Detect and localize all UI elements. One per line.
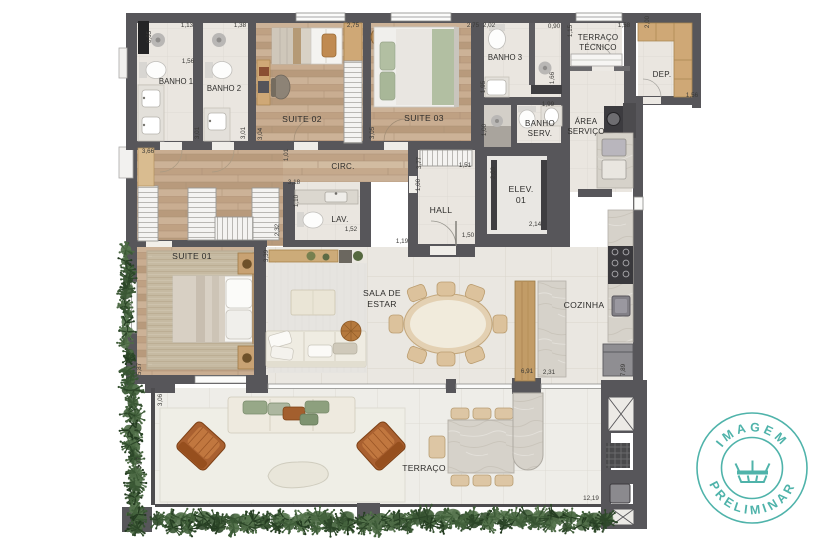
svg-text:1,10: 1,10 bbox=[293, 194, 300, 207]
svg-text:1,95: 1,95 bbox=[480, 80, 487, 93]
svg-text:3,01: 3,01 bbox=[240, 126, 247, 139]
svg-text:2,14: 2,14 bbox=[529, 221, 542, 228]
svg-text:1,01: 1,01 bbox=[283, 148, 290, 161]
svg-text:2,75: 2,75 bbox=[347, 22, 360, 29]
svg-text:TÉCNICO: TÉCNICO bbox=[579, 43, 616, 52]
svg-text:BANHO 1: BANHO 1 bbox=[159, 77, 193, 86]
svg-text:3,18: 3,18 bbox=[288, 179, 301, 186]
svg-text:2,02: 2,02 bbox=[483, 22, 496, 29]
svg-text:TERRAÇO: TERRAÇO bbox=[578, 33, 619, 42]
svg-text:5,87: 5,87 bbox=[136, 362, 143, 375]
svg-text:3,01: 3,01 bbox=[194, 126, 201, 139]
svg-text:3,06: 3,06 bbox=[157, 393, 164, 406]
svg-text:2,00: 2,00 bbox=[644, 15, 651, 28]
svg-text:IMAGEM: IMAGEM bbox=[713, 420, 791, 450]
svg-text:1,58: 1,58 bbox=[618, 22, 631, 29]
svg-text:COZINHA: COZINHA bbox=[564, 300, 605, 310]
svg-text:1,52: 1,52 bbox=[345, 226, 358, 233]
svg-text:2,32: 2,32 bbox=[274, 223, 281, 236]
svg-text:ÁREA: ÁREA bbox=[575, 117, 598, 126]
svg-text:1,99: 1,99 bbox=[542, 101, 555, 108]
svg-text:1,38: 1,38 bbox=[234, 22, 247, 29]
svg-text:SUITE 01: SUITE 01 bbox=[172, 251, 212, 261]
svg-text:01: 01 bbox=[516, 195, 526, 205]
svg-text:12,19: 12,19 bbox=[583, 495, 599, 502]
svg-text:1,15: 1,15 bbox=[567, 24, 574, 37]
svg-text:1,50: 1,50 bbox=[462, 232, 475, 239]
svg-text:SERVIÇO: SERVIÇO bbox=[567, 127, 604, 136]
svg-text:1,66: 1,66 bbox=[549, 71, 556, 84]
svg-text:3,04: 3,04 bbox=[257, 127, 264, 140]
svg-text:1,51: 1,51 bbox=[459, 162, 472, 169]
svg-text:BANHO 3: BANHO 3 bbox=[488, 53, 522, 62]
svg-text:3,77: 3,77 bbox=[416, 156, 423, 169]
svg-text:2,09: 2,09 bbox=[490, 166, 497, 179]
svg-text:LAV.: LAV. bbox=[331, 215, 348, 224]
svg-text:BANHO: BANHO bbox=[525, 119, 555, 128]
svg-text:7,89: 7,89 bbox=[620, 363, 627, 376]
svg-text:1,19: 1,19 bbox=[396, 238, 409, 245]
svg-text:6,91: 6,91 bbox=[521, 368, 534, 375]
svg-text:1,56: 1,56 bbox=[182, 58, 195, 65]
svg-text:SUITE 02: SUITE 02 bbox=[282, 114, 322, 124]
svg-text:2,31: 2,31 bbox=[543, 369, 556, 376]
svg-text:3,39: 3,39 bbox=[263, 249, 270, 262]
svg-text:CIRC.: CIRC. bbox=[331, 162, 354, 171]
svg-text:2,75: 2,75 bbox=[467, 22, 480, 29]
svg-text:3,07: 3,07 bbox=[136, 456, 143, 469]
svg-text:DEP.: DEP. bbox=[653, 70, 672, 79]
svg-text:TERRAÇO: TERRAÇO bbox=[402, 463, 446, 473]
svg-text:SERV.: SERV. bbox=[528, 129, 553, 138]
svg-text:SALA DE: SALA DE bbox=[363, 288, 401, 298]
svg-text:3,05: 3,05 bbox=[369, 126, 376, 139]
svg-text:ELEV.: ELEV. bbox=[508, 184, 533, 194]
svg-text:SUITE 03: SUITE 03 bbox=[404, 113, 444, 123]
svg-text:1,13: 1,13 bbox=[181, 22, 194, 29]
svg-text:1,56: 1,56 bbox=[686, 92, 699, 99]
svg-text:0,65: 0,65 bbox=[146, 30, 153, 43]
svg-text:BANHO 2: BANHO 2 bbox=[207, 84, 241, 93]
svg-text:1,00: 1,00 bbox=[481, 123, 488, 136]
svg-text:0,90: 0,90 bbox=[548, 23, 561, 30]
svg-text:1,00: 1,00 bbox=[415, 178, 422, 191]
svg-text:ESTAR: ESTAR bbox=[367, 299, 397, 309]
svg-text:3,66: 3,66 bbox=[142, 148, 155, 155]
svg-text:HALL: HALL bbox=[430, 205, 453, 215]
